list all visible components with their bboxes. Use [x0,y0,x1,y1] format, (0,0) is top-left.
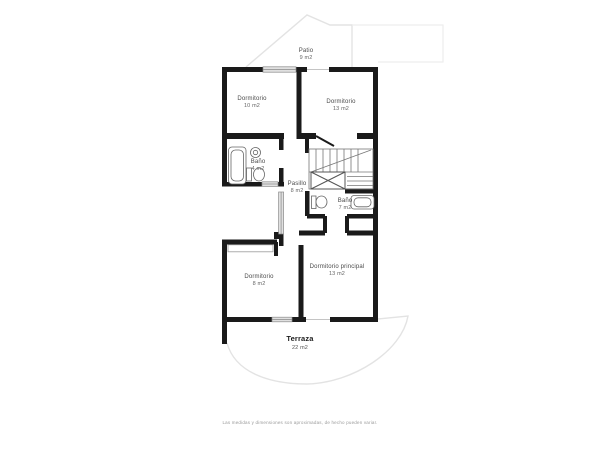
room-area: 9 m2 [299,55,313,61]
room-name: Dormitorio [237,96,266,102]
window-icon-bottom [272,317,292,322]
room-area: 10 m2 [237,103,266,109]
disclaimer-text: Las medidas y dimensiones son aproximada… [222,420,377,425]
room-label-terrace: Terraza 22 m2 [286,335,313,351]
room-name: Patio [299,48,313,54]
room-label-bath-ensuite: Baño 7 m2 [338,198,353,212]
floorplan-drawing [0,0,600,450]
room-area: 22 m2 [286,345,313,351]
room-area: 4 m2 [251,166,266,172]
closet-icon [228,245,273,252]
room-name: Terraza [286,334,313,343]
room-name: Dormitorio principal [310,264,365,270]
floorplan-canvas: Patio 9 m2 Dormitorio 10 m2 Dormitorio 1… [0,0,600,450]
room-label-bedroom-8: Dormitorio 8 m2 [244,274,273,288]
bathtub-icon [351,196,374,210]
room-area: 8 m2 [244,281,273,287]
window-icon-bath [262,182,278,187]
door-leaf-icon [316,136,334,146]
room-name: Pasillo [288,181,307,187]
sink-icon [251,148,261,158]
room-label-bedroom-10: Dormitorio 10 m2 [237,96,266,110]
bathtub-icon [229,147,247,184]
room-name: Baño [251,159,266,165]
room-label-hallway: Pasillo 8 m2 [288,181,307,195]
toilet-icon [312,196,328,209]
patio-outline [246,15,443,67]
room-area: 8 m2 [288,188,307,194]
room-area: 13 m2 [326,106,355,112]
room-label-bedroom-13: Dormitorio 13 m2 [326,99,355,113]
room-area: 13 m2 [310,271,365,277]
room-label-master-bedroom: Dormitorio principal 13 m2 [310,264,365,278]
terraza-outline [227,316,408,384]
room-name: Dormitorio [326,99,355,105]
room-area: 7 m2 [338,205,353,211]
stairs-icon [309,149,373,189]
window-icon-hall [279,192,284,234]
room-name: Baño [338,198,353,204]
room-label-bath-small: Baño 4 m2 [251,159,266,173]
window-icon-top [263,67,296,72]
room-label-patio: Patio 9 m2 [299,48,313,62]
room-name: Dormitorio [244,274,273,280]
